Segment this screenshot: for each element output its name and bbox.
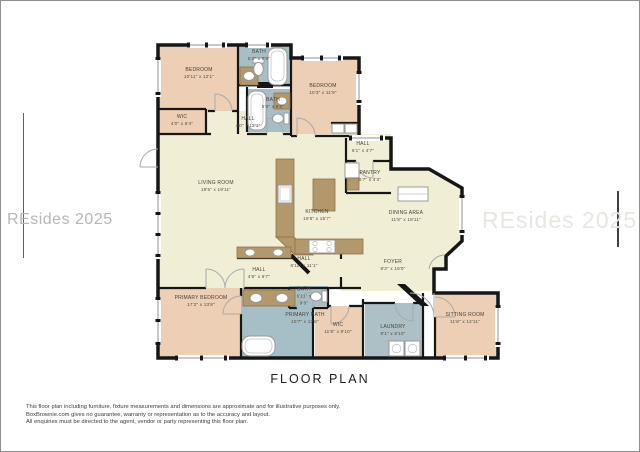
floor-plan-page: BEDROOM10'11" x 12'1" BATH5'4" x 8'5" BA… (0, 0, 640, 452)
sink (273, 249, 283, 256)
toilet-tank (284, 113, 289, 124)
label-pantry: PANTRY5'7" x 4'3" (357, 170, 384, 184)
label-bath-3: BATH6'11" x 9'0" (292, 287, 316, 308)
disclaimer-line-2: BoxBrownie.com gives no guarantee, warra… (26, 412, 340, 420)
sink (244, 72, 255, 81)
label-laundry: LAUNDRY8'1" x 9'10" (380, 324, 405, 338)
toilet (273, 114, 284, 123)
page-title: FLOOR PLAN (1, 372, 639, 386)
label-hall-4: HALL4'6" x 6'7" (248, 267, 270, 281)
stove (309, 240, 335, 253)
kitchen-island (313, 179, 335, 211)
label-hall-3: HALL6'11" x 11'1" (290, 256, 317, 270)
washer (389, 341, 404, 356)
sink (276, 294, 288, 303)
label-sitting-room: SITTING ROOM11'8" x 12'11" (445, 312, 484, 326)
label-bath-1: BATH5'4" x 8'5" (248, 49, 270, 63)
sink (250, 294, 262, 303)
dryer (405, 341, 420, 356)
label-foyer: FOYER8'3" x 18'0" (380, 259, 405, 273)
watermark-left: REsides 2025 (7, 211, 113, 229)
label-dining-area: DINING AREA11'8" x 18'11" (389, 210, 423, 224)
label-kitchen: KITCHEN19'8" x 15'7" (303, 209, 331, 223)
label-bath-2: BATH5'3" x 8'6" (262, 97, 284, 111)
label-wic-1: WIC4'0" x 6'4" (171, 114, 193, 128)
label-bedroom-1: BEDROOM10'11" x 12'1" (184, 67, 214, 81)
disclaimer-line-3: All enquiries must be directed to the ag… (26, 419, 340, 427)
toilet-tank (322, 291, 327, 302)
label-bedroom-2: BEDROOM10'3" x 11'9" (309, 83, 336, 97)
disclaimer-line-1: This floor plan including furniture, fix… (26, 404, 340, 412)
toilet (254, 63, 264, 76)
sink (245, 249, 255, 256)
label-living-room: LIVING ROOM19'5" x 19'11" (198, 180, 234, 194)
label-primary-bedroom: PRIMARY BEDROOM17'2" x 13'8" (175, 295, 228, 309)
label-wic-2: WIC11'8" x 9'10" (324, 322, 351, 336)
label-hall-1: HALL4'0" x 12'1" (235, 116, 260, 130)
closet-door (345, 124, 357, 133)
disclaimer: This floor plan including furniture, fix… (26, 404, 340, 427)
label-primary-bath: PRIMARY BATH10'7" x 12'8" (285, 312, 324, 326)
watermark-right: REsides 2025 (482, 207, 637, 234)
closet-door (332, 124, 344, 133)
label-hall-2: HALL6'1" x 4'7" (352, 141, 374, 155)
